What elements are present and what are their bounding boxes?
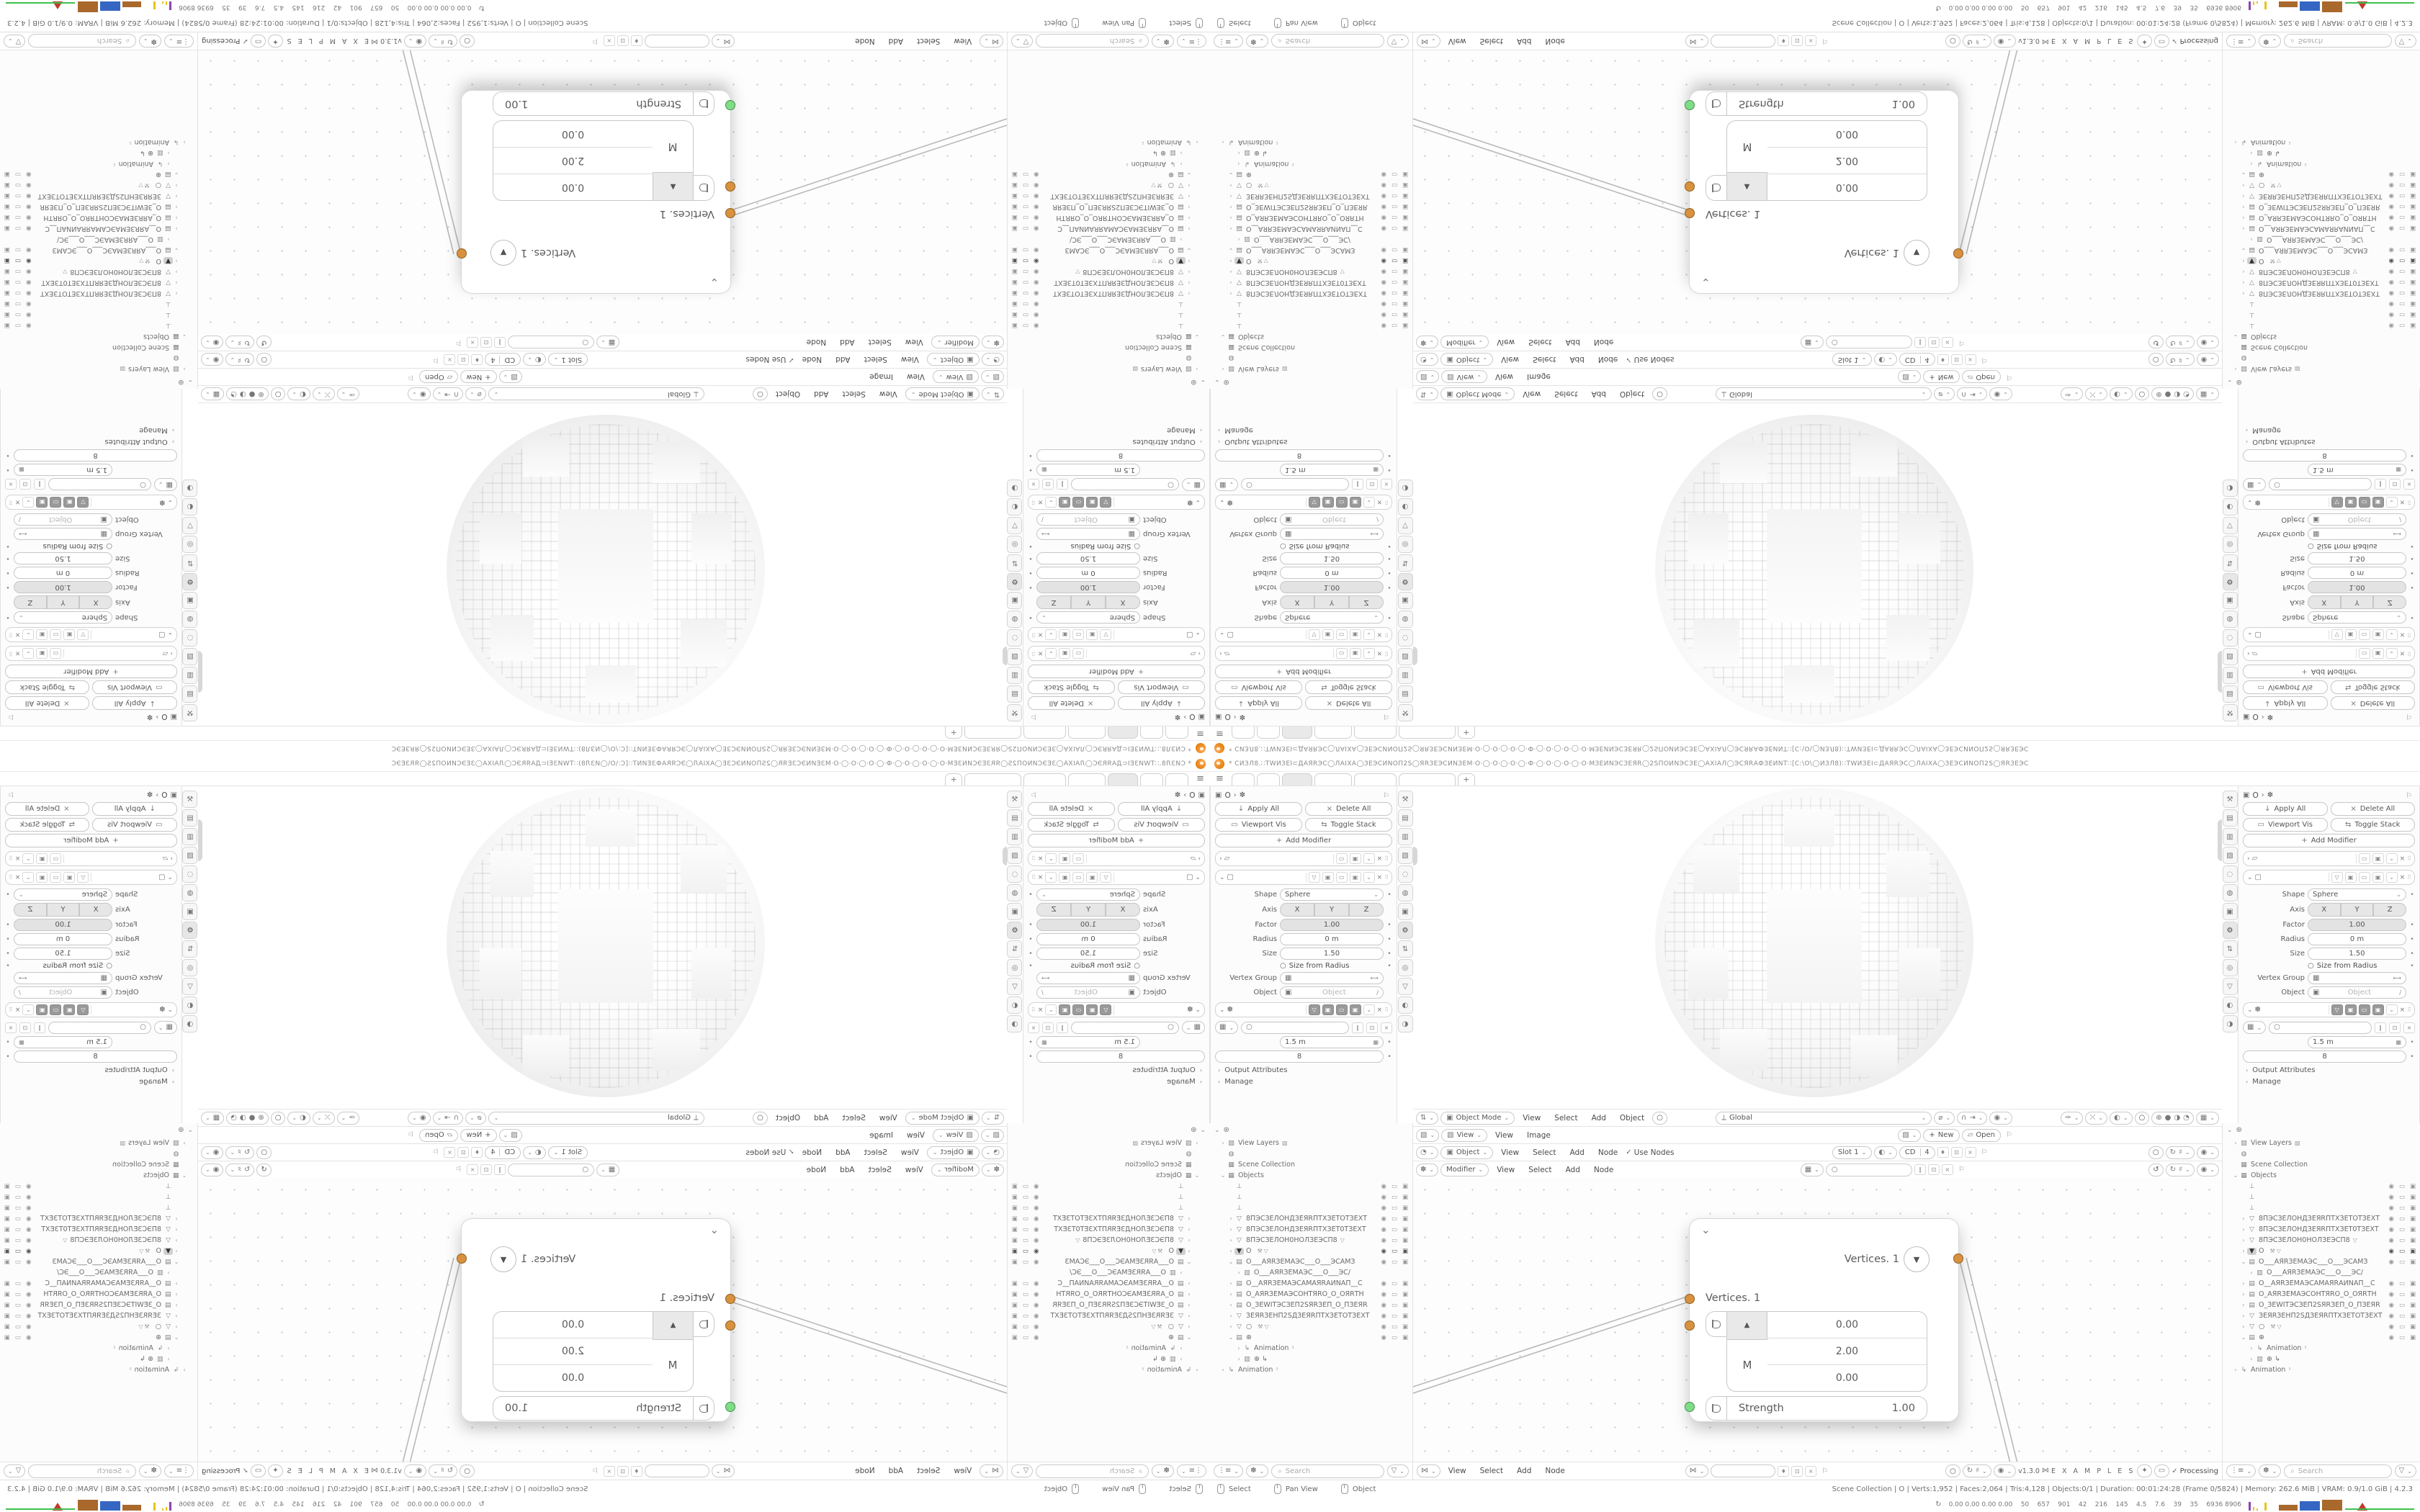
- toggle-stack-button[interactable]: ⇆Toggle Stack: [1028, 818, 1115, 832]
- properties-tab[interactable]: ▧: [2223, 648, 2238, 665]
- vector-z-field[interactable]: 0.00: [1767, 1365, 1927, 1391]
- expand-icon[interactable]: ›: [181, 1367, 188, 1373]
- viewport-disable-toggle[interactable]: ▭: [1391, 1194, 1397, 1201]
- menu-node[interactable]: Node: [1539, 1467, 1570, 1475]
- properties-tab[interactable]: ▣: [1008, 903, 1023, 920]
- search-input[interactable]: ⌕ Search: [1036, 1464, 1148, 1478]
- outliner-item-label[interactable]: 8ПЭСЗЕЛОН0НОЛЗЕЭСП8: [1246, 1236, 1337, 1244]
- animate-dot[interactable]: •: [2409, 891, 2415, 899]
- geometry-nodes-modifier-header[interactable]: ⌄ ✽ ▽ ▣ ▭ ▣ ⌄ × ⠿: [1028, 495, 1205, 510]
- strength-field[interactable]: Strength 1.00: [1726, 1396, 1927, 1421]
- monitor-toggle-icon[interactable]: ▭: [50, 648, 61, 659]
- viewport-disable-toggle[interactable]: ▭: [15, 1302, 21, 1309]
- unlink-icon[interactable]: ×: [1965, 1147, 1976, 1158]
- hide-toggle[interactable]: ◉: [1034, 1183, 1039, 1190]
- geometry-nodes-modifier-header[interactable]: ⌄ ✽ ▽ ▣ ▭ ▣ ⌄ × ⠿: [5, 495, 177, 510]
- properties-tab[interactable]: ◑: [183, 1015, 198, 1032]
- expand-icon[interactable]: ›: [1193, 366, 1201, 372]
- dropdown-icon[interactable]: ⌄: [22, 629, 34, 640]
- viewport-disable-toggle[interactable]: ▭: [1391, 225, 1397, 233]
- outliner-item-label[interactable]: O: [1246, 257, 1251, 265]
- hide-toggle[interactable]: ◉: [1381, 247, 1386, 254]
- workspace-tab[interactable]: [1232, 773, 1255, 786]
- material-name-field[interactable]: CD4: [485, 1146, 521, 1159]
- animate-dot[interactable]: •: [1386, 570, 1392, 577]
- hide-toggle[interactable]: ◉: [26, 258, 31, 265]
- hide-toggle[interactable]: ◉: [26, 1205, 31, 1212]
- node-group-name-field[interactable]: ○: [1241, 1022, 1349, 1034]
- viewport-disable-toggle[interactable]: ▭: [15, 279, 21, 287]
- modifier-name-field[interactable]: [1113, 1005, 1185, 1014]
- properties-tab[interactable]: ▧: [1008, 847, 1023, 864]
- expand-icon[interactable]: ›: [2240, 1313, 2247, 1319]
- viewport-disable-toggle[interactable]: ▭: [2399, 1313, 2405, 1320]
- menu-view[interactable]: View: [1495, 1148, 1525, 1157]
- modifier-header-collapsed[interactable]: › ▱ ▭ ▣ ⌄ × ⠿: [1028, 851, 1205, 866]
- viewport-disable-toggle[interactable]: ▭: [1391, 323, 1397, 330]
- input-count-field[interactable]: 8: [1036, 1050, 1205, 1063]
- modifier-name-field[interactable]: [1236, 873, 1307, 882]
- expand-icon[interactable]: ›: [1186, 290, 1193, 297]
- input-m-field[interactable]: 1.5 m▦: [1280, 464, 1384, 476]
- geometry-nodes-modifier-header[interactable]: ⌄ ✽ ▽ ▣ ▭ ▣ ⌄ × ⠿: [1028, 1002, 1205, 1017]
- shape-select[interactable]: Sphere⌄: [1036, 611, 1140, 624]
- hide-toggle[interactable]: ◉: [2389, 1259, 2394, 1266]
- strength-field[interactable]: Strength 1.00: [1726, 91, 1927, 116]
- eyedropper-icon[interactable]: ∕: [19, 989, 21, 996]
- render-toggle-icon[interactable]: ▣: [2372, 872, 2384, 883]
- viewport-vis-button[interactable]: ▭Viewport Vis: [1118, 680, 1205, 694]
- expand-icon[interactable]: ›: [2240, 1302, 2247, 1308]
- new-image-button[interactable]: +New: [460, 1129, 496, 1142]
- toolbar-toggle-handle[interactable]: [1003, 847, 1007, 865]
- expand-icon[interactable]: ›: [173, 1215, 180, 1222]
- viewport-3d[interactable]: [198, 403, 1007, 726]
- properties-tab[interactable]: ◍: [2223, 884, 2238, 901]
- menu-icon[interactable]: ≡: [1216, 773, 1224, 786]
- object-field[interactable]: ▣Object∕: [1036, 986, 1140, 999]
- outliner-item-label[interactable]: 8ПЭСЗЕЛОН0НОЛЗЕЭСП8: [1083, 1236, 1174, 1244]
- modifier-name-field[interactable]: [1232, 854, 1333, 863]
- viewport-disable-toggle[interactable]: ▭: [15, 1183, 21, 1190]
- dropdown-icon[interactable]: ⌄: [22, 648, 34, 659]
- menu-select[interactable]: Select: [1549, 1114, 1583, 1122]
- outliner-item-label[interactable]: ⊕ ↳: [1254, 149, 1268, 157]
- hide-toggle[interactable]: ◉: [1381, 323, 1386, 330]
- hide-toggle[interactable]: ◉: [1034, 204, 1039, 211]
- hide-toggle[interactable]: ◉: [2389, 1280, 2394, 1287]
- expand-icon[interactable]: ›: [170, 855, 173, 863]
- unlink-icon[interactable]: ×: [604, 36, 615, 47]
- outliner-row[interactable]: ⊥◉▭▣: [2224, 310, 2419, 320]
- object-field[interactable]: ▣Object∕: [1280, 513, 1384, 526]
- input-count-field[interactable]: 8: [2243, 1050, 2406, 1063]
- copy-icon[interactable]: ⊡: [2389, 1022, 2401, 1033]
- slot-select[interactable]: Slot 1⌄: [548, 1146, 588, 1159]
- expand-icon[interactable]: ›: [1219, 366, 1227, 372]
- output-attributes-section[interactable]: › Output Attributes: [1028, 438, 1202, 446]
- close-icon[interactable]: ×: [2400, 650, 2406, 657]
- expand-icon[interactable]: ›: [1227, 215, 1234, 221]
- render-toggle-icon[interactable]: ▣: [1059, 629, 1070, 640]
- slot-select[interactable]: Slot 1⌄: [548, 354, 588, 366]
- vertices-input-socket[interactable]: [725, 208, 735, 218]
- editor-type-button[interactable]: ⋈⌄: [1417, 1464, 1440, 1477]
- copy-icon[interactable]: ⊡: [1366, 480, 1378, 490]
- node-group-browse-button[interactable]: ▦⌄: [596, 336, 619, 349]
- hide-toggle[interactable]: ◉: [2389, 301, 2394, 308]
- outliner-row[interactable]: ›▽8ПЭСЗЕЛОН0НОЛЗЕЭСП8▽◉▭▣: [1, 1235, 196, 1246]
- outliner-item-label[interactable]: O___АЯRЗЕМАЭС___O___ЭСАМЗ: [2259, 246, 2368, 254]
- output-socket[interactable]: [457, 1254, 467, 1264]
- shape-select[interactable]: Sphere⌄: [14, 611, 112, 624]
- render-disable-toggle[interactable]: ▣: [1402, 290, 1408, 297]
- axis-z-button[interactable]: Z: [1349, 595, 1384, 609]
- delete-all-button[interactable]: ×Delete All: [5, 696, 90, 710]
- viewport-disable-toggle[interactable]: ▭: [1023, 171, 1028, 179]
- properties-tab[interactable]: ▽: [1398, 978, 1413, 995]
- dropdown-icon[interactable]: ⌄: [2386, 497, 2398, 508]
- hide-toggle[interactable]: ◉: [1381, 1194, 1386, 1201]
- outliner-row[interactable]: ›▽8ПЭСЗЕЛОНДЗЕЯRПТХЗЕТ0ТЗЕХТ◉▭▣: [1211, 277, 1411, 288]
- tree-browse-button[interactable]: ⋈⌄: [712, 1464, 735, 1477]
- outliner-item-label[interactable]: O: [156, 1247, 161, 1255]
- close-icon[interactable]: ×: [1038, 855, 1044, 863]
- material-name-field[interactable]: CD4: [485, 354, 521, 366]
- menu-add[interactable]: Add: [1560, 1166, 1586, 1174]
- hide-toggle[interactable]: ◉: [1381, 1302, 1386, 1309]
- input-m-field[interactable]: 1.5 m▦: [2308, 464, 2406, 476]
- outliner-row[interactable]: ›▽8ПЭСЗЕЛОН0НОЛЗЕЭСП8▽◉▭▣: [2224, 1235, 2419, 1246]
- hide-toggle[interactable]: ◉: [1034, 1313, 1039, 1320]
- collapse-icon[interactable]: ⌄: [1214, 378, 1220, 385]
- menu-select[interactable]: Select: [862, 1166, 897, 1174]
- menu-select[interactable]: Select: [859, 1148, 893, 1157]
- collapse-icon[interactable]: ⌄: [2247, 1007, 2253, 1014]
- viewport-disable-toggle[interactable]: ▭: [1023, 323, 1028, 330]
- copy-icon[interactable]: ⊡: [19, 480, 31, 490]
- outliner-item-label[interactable]: Animation: [2251, 1366, 2285, 1374]
- collapse-icon[interactable]: ⌄: [1200, 1127, 1206, 1134]
- vertex-group-field[interactable]: ▦⟷: [1280, 972, 1384, 984]
- frame-button[interactable]: ▭: [251, 35, 266, 48]
- expand-arrow-icon[interactable]: ▲: [653, 172, 693, 200]
- node-group-browse-button[interactable]: ▦⌄: [2243, 1021, 2266, 1034]
- input-m-field[interactable]: 1.5 m▦: [1036, 464, 1140, 476]
- axis-x-button[interactable]: X: [79, 903, 112, 917]
- node-group-name-field[interactable]: ○: [1071, 479, 1179, 491]
- workspace-tab[interactable]: [1257, 773, 1280, 786]
- eyedropper-icon[interactable]: ∕: [1376, 989, 1379, 996]
- pin-icon[interactable]: ⚐: [430, 356, 442, 364]
- outliner-row[interactable]: ⌄▤O___АЯRЗЕМАЭС___O___ЭСАМЗ◉▭▣: [1, 245, 196, 256]
- hide-toggle[interactable]: ◉: [2389, 247, 2394, 254]
- tree-name-field[interactable]: [645, 35, 709, 48]
- realtime-toggle-icon[interactable]: ▣: [1086, 629, 1098, 640]
- viewport-disable-toggle[interactable]: ▭: [1391, 269, 1397, 276]
- hide-toggle[interactable]: ◉: [2389, 258, 2394, 265]
- output-attributes-section[interactable]: › Output Attributes: [1218, 1066, 1392, 1074]
- outliner-row[interactable]: ◍: [2224, 1148, 2419, 1159]
- render-disable-toggle[interactable]: ▣: [4, 225, 10, 233]
- outliner-row[interactable]: ›▥O___АЯRЗЕМАЭС___O___ЭС/: [1009, 1267, 1209, 1278]
- display-mode-button[interactable]: ⋮≡⌄: [1177, 1464, 1206, 1477]
- axis-y-button[interactable]: Y: [1071, 903, 1106, 917]
- properties-tab[interactable]: ⚒: [1398, 704, 1413, 721]
- modifier-header-collapsed[interactable]: › ▱ ▭ ▣ ⌄ × ⠿: [1215, 646, 1392, 661]
- outliner-row[interactable]: ⌄▤O___АЯRЗЕМАЭС___O___ЭСАМЗ◉▭▣: [2224, 1256, 2419, 1267]
- vector-z-field[interactable]: 0.00: [1767, 121, 1927, 147]
- monitor-toggle-icon[interactable]: ▭: [1072, 1004, 1084, 1015]
- expand-icon[interactable]: ›: [173, 258, 180, 264]
- monitor-toggle-icon[interactable]: ▭: [1072, 497, 1084, 508]
- hide-toggle[interactable]: ◉: [1034, 1280, 1039, 1287]
- viewport-disable-toggle[interactable]: ▭: [15, 182, 21, 189]
- expand-arrow-icon[interactable]: ▲: [653, 1312, 693, 1340]
- expand-icon[interactable]: ›: [1186, 225, 1193, 232]
- viewport-disable-toggle[interactable]: ▭: [2399, 247, 2405, 254]
- edit-mode-toggle-icon[interactable]: ▽: [1309, 872, 1320, 883]
- tree-browse-button[interactable]: ⋈⌄: [1685, 35, 1709, 48]
- hide-toggle[interactable]: ◉: [1381, 269, 1386, 276]
- size-from-radius-checkbox[interactable]: ○: [1134, 962, 1140, 970]
- use-nodes-checkbox[interactable]: ✓: [788, 1148, 794, 1156]
- outliner-row[interactable]: ▦Scene Collection: [1211, 1159, 1411, 1170]
- hide-toggle[interactable]: ◉: [1034, 1248, 1039, 1255]
- animate-dot[interactable]: •: [2409, 543, 2415, 550]
- viewport-disable-toggle[interactable]: ▭: [1391, 182, 1397, 189]
- render-disable-toggle[interactable]: ▣: [4, 323, 10, 330]
- hide-toggle[interactable]: ◉: [26, 225, 31, 233]
- outliner-row[interactable]: ⊥◉▭▣: [1009, 1202, 1209, 1213]
- collapse-icon[interactable]: ⌄: [1219, 631, 1225, 639]
- hide-toggle[interactable]: ◉: [26, 171, 31, 179]
- overlay-node-button[interactable]: ◉⌄: [2197, 354, 2219, 366]
- outliner-row[interactable]: ›▧View Layers▧: [1, 364, 196, 374]
- modifier-name-field[interactable]: [1113, 498, 1185, 507]
- outliner-row[interactable]: ⌄▤⊕◉▭▣: [1009, 169, 1209, 180]
- render-disable-toggle[interactable]: ▣: [4, 1183, 10, 1190]
- menu-image[interactable]: Image: [864, 373, 899, 382]
- render-disable-toggle[interactable]: ▣: [1402, 204, 1408, 211]
- viewport-disable-toggle[interactable]: ▭: [15, 1334, 21, 1341]
- outliner-row[interactable]: ›▥⊕ ↳: [2224, 148, 2419, 158]
- expand-icon[interactable]: ⌄: [173, 1334, 180, 1341]
- hide-toggle[interactable]: ◉: [1381, 290, 1386, 297]
- animate-dot[interactable]: •: [1386, 963, 1392, 970]
- editor-type-button[interactable]: ⇅⌄: [982, 1112, 1004, 1125]
- properties-tab[interactable]: ▽: [1008, 517, 1023, 534]
- outliner-row[interactable]: ⌄▦Objects: [1, 331, 196, 342]
- drag-grip-icon[interactable]: ⠿: [1032, 855, 1036, 862]
- outliner-row[interactable]: ›▽8ПЭСЗЕЛОНДЗЕЯRПТХЗЕТ0ТЗЕХТ◉▭▣: [1009, 1224, 1209, 1235]
- menu-add[interactable]: Add: [830, 356, 856, 364]
- menu-add[interactable]: Add: [834, 1166, 860, 1174]
- expand-icon[interactable]: ›: [1227, 258, 1234, 264]
- outliner-row[interactable]: ›▽○⚒▽◉▭▣: [1211, 1321, 1411, 1332]
- attribute-toggle-icon[interactable]: ▦: [1041, 467, 1047, 473]
- attribute-dropdown-button[interactable]: ▼: [1904, 1246, 1930, 1272]
- expand-icon[interactable]: ›: [165, 1345, 172, 1351]
- workspace-tab[interactable]: [1314, 726, 1352, 739]
- outliner-item-label[interactable]: O__АЯRЗЕМАЭСАМАЯRАИNАП__С: [45, 225, 161, 233]
- close-icon[interactable]: ×: [15, 631, 21, 639]
- node-group-browse-button[interactable]: ▦⌄: [2243, 478, 2266, 491]
- manage-section[interactable]: › Manage: [2246, 426, 2415, 434]
- object-field[interactable]: ▣Object∕: [1280, 986, 1384, 999]
- unlink-icon[interactable]: ×: [1805, 1466, 1816, 1477]
- strength-input-socket[interactable]: [725, 1402, 735, 1412]
- properties-tab[interactable]: ▤: [183, 809, 198, 827]
- gizmo-button[interactable]: ⤬⌄: [2085, 388, 2107, 401]
- properties-tab[interactable]: ⚒: [2223, 704, 2238, 721]
- properties-tab[interactable]: ▧: [183, 648, 198, 665]
- properties-tab[interactable]: ▣: [183, 903, 198, 920]
- status-circle-icon[interactable]: ○: [1945, 1464, 1960, 1477]
- monitor-toggle-icon[interactable]: ▭: [1336, 1004, 1348, 1015]
- modifier-name-field[interactable]: [1236, 630, 1307, 639]
- hide-toggle[interactable]: ◉: [2389, 1226, 2394, 1233]
- viewport-disable-toggle[interactable]: ▭: [1023, 1248, 1028, 1255]
- properties-tab[interactable]: ⚙: [1398, 573, 1413, 590]
- render-disable-toggle[interactable]: ▣: [2410, 1226, 2416, 1233]
- outliner-item-label[interactable]: O___АЯRЗЕМАЭС___O___ЭСАМЗ: [1065, 246, 1174, 254]
- hide-toggle[interactable]: ◉: [26, 279, 31, 287]
- outliner-row[interactable]: ›▤O_ЗЕWІТЭСЗЕП2SЯRЗЕП_O_ПЗЕЯR◉▭▣: [1, 202, 196, 212]
- expand-icon[interactable]: ›: [2240, 258, 2247, 264]
- outliner-item-label[interactable]: 8ПЭСЗЕЛОН0НОЛЗЕЭСП8: [2259, 268, 2350, 276]
- hide-toggle[interactable]: ◉: [1381, 1226, 1386, 1233]
- viewport-disable-toggle[interactable]: ▭: [2399, 1226, 2405, 1233]
- viewport-disable-toggle[interactable]: ▭: [15, 225, 21, 233]
- filter-mode-button[interactable]: ✽⌄: [1246, 1464, 1268, 1477]
- render-disable-toggle[interactable]: ▣: [1012, 323, 1018, 330]
- sidebar-toggle-handle[interactable]: [198, 819, 202, 861]
- properties-tab[interactable]: ⚒: [2223, 791, 2238, 808]
- pin-icon[interactable]: ⚐: [452, 338, 465, 346]
- viewport-disable-toggle[interactable]: ▭: [1391, 1302, 1397, 1309]
- menu-select[interactable]: Select: [836, 390, 871, 399]
- render-disable-toggle[interactable]: ▣: [2410, 1259, 2416, 1266]
- node-group-browse-button[interactable]: ▦⌄: [596, 1164, 619, 1176]
- node-group-name-field[interactable]: ○: [1826, 1164, 1912, 1176]
- add-modifier-button[interactable]: +Add Modifier: [1215, 665, 1392, 678]
- snap-button[interactable]: ∩⇥⌄: [1957, 388, 1987, 401]
- animate-dot[interactable]: •: [2409, 1039, 2415, 1046]
- outliner-item-label[interactable]: View Layers: [1141, 365, 1182, 373]
- render-disable-toggle[interactable]: ▣: [1402, 1259, 1408, 1266]
- size-field[interactable]: 1.50: [2308, 552, 2406, 564]
- material-browse-button[interactable]: ◐⌄: [523, 354, 545, 366]
- factor-slider[interactable]: 1.00: [1036, 919, 1140, 931]
- workspace-tab[interactable]: [1140, 726, 1163, 739]
- axis-y-button[interactable]: Y: [47, 903, 80, 917]
- mode-circle-icon[interactable]: ○: [753, 1112, 768, 1125]
- viewport-disable-toggle[interactable]: ▭: [1391, 258, 1397, 265]
- outliner-row[interactable]: ›▥O___АЯRЗЕМАЭС___O___ЭС/: [1, 1267, 196, 1278]
- size-from-radius-checkbox[interactable]: ○: [1280, 542, 1286, 550]
- animate-dot[interactable]: •: [1028, 614, 1034, 621]
- animate-dot[interactable]: •: [1386, 922, 1392, 929]
- viewport-disable-toggle[interactable]: ▭: [1391, 1334, 1397, 1341]
- eyedropper-icon[interactable]: ∕: [19, 516, 21, 523]
- outliner-row[interactable]: ⌄▤⊕◉▭▣: [1009, 1332, 1209, 1343]
- render-toggle-icon[interactable]: ▣: [1059, 497, 1070, 508]
- dropdown-icon[interactable]: ⌄: [1363, 629, 1375, 640]
- shape-select[interactable]: Sphere⌄: [2308, 888, 2406, 901]
- outliner-item-label[interactable]: Animation: [2267, 1344, 2301, 1352]
- collapse-icon[interactable]: ⌄: [1219, 499, 1225, 506]
- outliner-item-label[interactable]: ⊕: [1246, 1333, 1252, 1341]
- expand-icon[interactable]: ›: [1178, 150, 1185, 156]
- viewport-disable-toggle[interactable]: ▭: [1391, 1183, 1397, 1190]
- viewport-disable-toggle[interactable]: ▭: [2399, 279, 2405, 287]
- use-nodes-checkbox[interactable]: ✓: [788, 356, 794, 364]
- monitor-toggle-icon[interactable]: ▭: [50, 629, 61, 640]
- workspace-tab[interactable]: [964, 726, 1021, 739]
- render-disable-toggle[interactable]: ▣: [2410, 1334, 2416, 1341]
- edit-mode-toggle-icon[interactable]: ▽: [1100, 497, 1111, 508]
- collapse-icon[interactable]: ⌄: [1200, 378, 1206, 385]
- input-count-field[interactable]: 8: [14, 449, 177, 462]
- viewport-disable-toggle[interactable]: ▭: [1391, 1280, 1397, 1287]
- expand-icon[interactable]: ›: [1186, 1237, 1193, 1243]
- animate-dot[interactable]: •: [5, 1039, 11, 1046]
- modifier-header-collapsed[interactable]: › ▱ ▭ ▣ ⌄ × ⠿: [2243, 851, 2415, 866]
- shading-mode-group[interactable]: ⊕●◑◔: [226, 388, 269, 401]
- expand-icon[interactable]: ›: [2248, 1356, 2255, 1362]
- outliner-item-label[interactable]: O___АЯRЗЕМАЭС___O___ЭСАМЗ: [2259, 1258, 2368, 1266]
- render-disable-toggle[interactable]: ▣: [4, 182, 10, 189]
- viewport-disable-toggle[interactable]: ▭: [2399, 204, 2405, 211]
- render-disable-toggle[interactable]: ▣: [4, 1259, 10, 1266]
- fake-user-icon[interactable]: ♦: [472, 354, 483, 365]
- manage-section[interactable]: › Manage: [2246, 1078, 2415, 1086]
- render-disable-toggle[interactable]: ▣: [4, 312, 10, 319]
- hide-toggle[interactable]: ◉: [1034, 279, 1039, 287]
- outliner-row[interactable]: ⊥◉▭▣: [2224, 1202, 2419, 1213]
- fake-user-icon[interactable]: ∥: [1352, 480, 1363, 490]
- expand-icon[interactable]: ⌄: [2240, 171, 2247, 178]
- add-workspace-tab-button[interactable]: +: [1458, 773, 1475, 786]
- menu-node[interactable]: Node: [797, 1148, 828, 1157]
- outliner-row[interactable]: ›▤O_ЗЕWІТЭСЗЕП2SЯRЗЕП_O_ПЗЕЯR◉▭▣: [1009, 1300, 1209, 1310]
- outliner-row[interactable]: ⊥◉▭▣: [1, 299, 196, 310]
- strength-field[interactable]: Strength 1.00: [493, 1396, 694, 1421]
- drag-grip-icon[interactable]: ⠿: [9, 1007, 13, 1013]
- expand-icon[interactable]: ›: [1235, 236, 1242, 243]
- viewport-disable-toggle[interactable]: ▭: [1023, 182, 1028, 189]
- menu-node[interactable]: Node: [797, 356, 828, 364]
- expand-icon[interactable]: ›: [173, 215, 180, 221]
- outliner-item-label[interactable]: Scene Collection: [112, 343, 169, 351]
- expand-icon[interactable]: ›: [173, 193, 180, 199]
- add-modifier-button[interactable]: +Add Modifier: [5, 665, 177, 678]
- node-group-browse-button[interactable]: ▦⌄: [1182, 478, 1205, 491]
- cast-modifier-header[interactable]: ⌄ ▢ ▽ ▣ ▭ ▣ ⌄ × ⠿: [1215, 870, 1392, 885]
- manage-section[interactable]: › Manage: [5, 1078, 174, 1086]
- viewport-disable-toggle[interactable]: ▭: [1023, 301, 1028, 308]
- render-disable-toggle[interactable]: ▣: [1402, 279, 1408, 287]
- radius-field[interactable]: 0 m: [14, 933, 112, 945]
- realtime-toggle-icon[interactable]: ▣: [2345, 1004, 2357, 1015]
- editor-type-button[interactable]: ▧⌄: [1416, 1129, 1439, 1142]
- outliner-item-label[interactable]: Animation: [135, 1366, 169, 1374]
- delete-all-button[interactable]: ×Delete All: [1028, 696, 1115, 710]
- outliner-row[interactable]: ›▽ЗЕЯRЗЕНП2SДЗЕЯRПТХЗЕТОТЗЕХТ◉▭▣: [1009, 191, 1209, 202]
- expand-icon[interactable]: ›: [1186, 204, 1193, 210]
- properties-tab[interactable]: ▽: [183, 517, 198, 534]
